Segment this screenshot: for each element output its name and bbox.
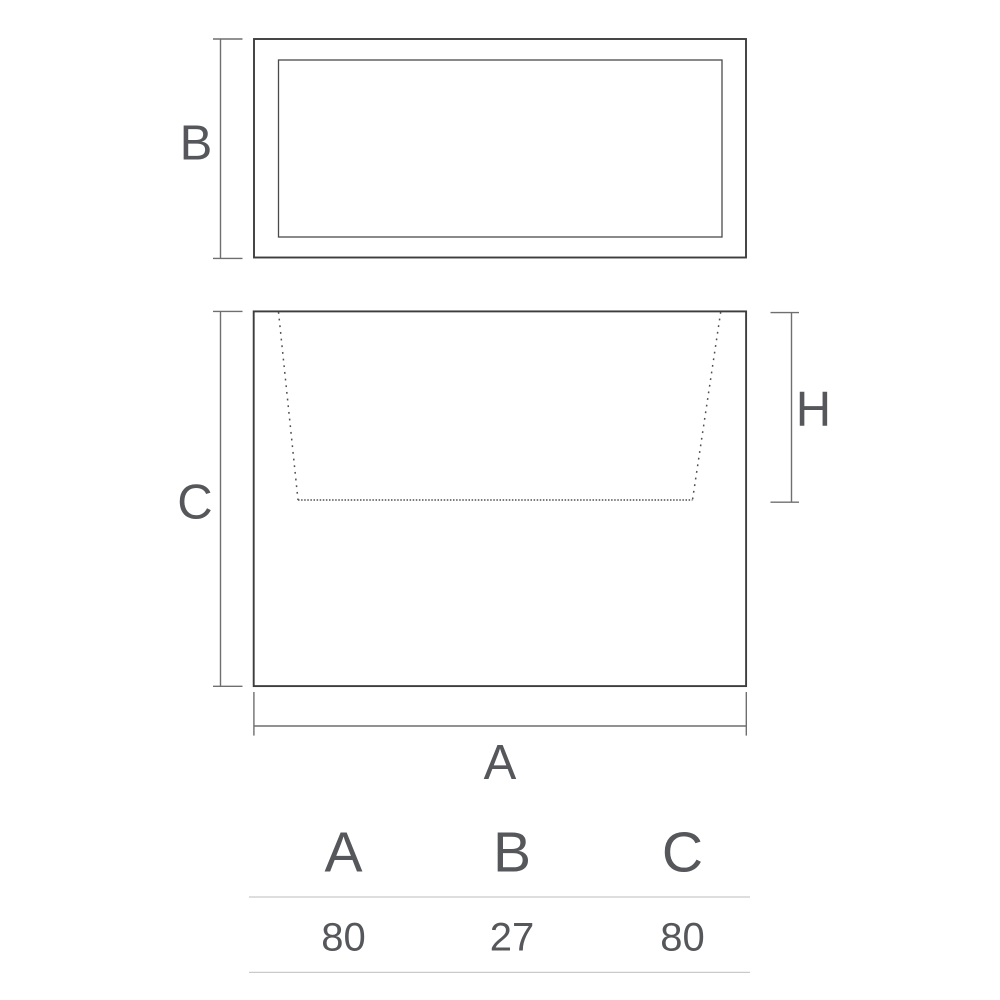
svg-text:80: 80 xyxy=(321,916,366,960)
svg-text:A: A xyxy=(324,821,362,885)
svg-text:B: B xyxy=(180,117,213,171)
svg-text:B: B xyxy=(493,821,531,885)
svg-text:27: 27 xyxy=(490,916,535,960)
svg-text:C: C xyxy=(662,821,703,885)
svg-text:C: C xyxy=(177,476,212,530)
svg-text:80: 80 xyxy=(660,916,705,960)
svg-text:A: A xyxy=(484,736,517,790)
svg-text:H: H xyxy=(796,383,831,437)
